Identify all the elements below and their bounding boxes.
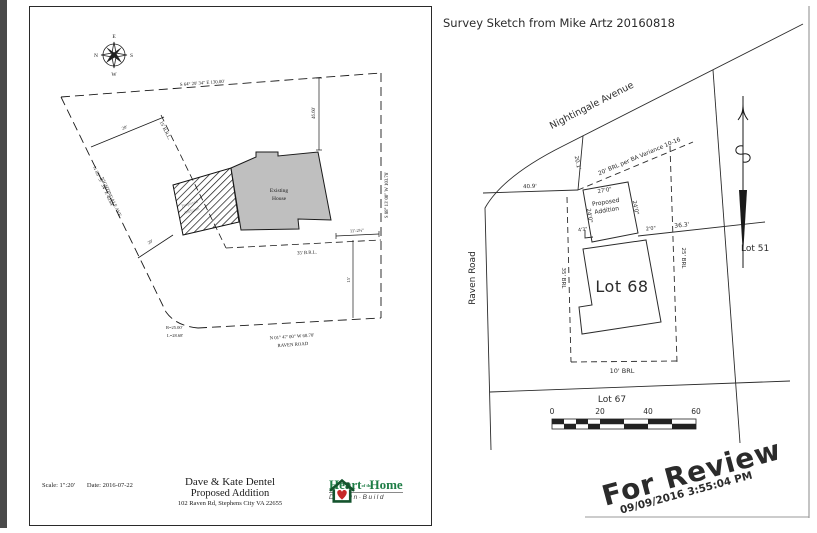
rear-dim-label: 15' (346, 277, 351, 283)
rear-brl-label: 35' B.R.L. (297, 250, 317, 256)
compass-rose-icon (101, 42, 127, 68)
title-block-center: Dave & Kate Dentel Proposed Addition 102… (130, 476, 330, 508)
side-offset-line (138, 235, 173, 258)
curve-length-label: L=28.68' (167, 333, 183, 338)
sketch-title: Survey Sketch from Mike Artz 20160818 (443, 16, 675, 30)
company-logo: Heartof theHome Design·Build (329, 478, 403, 501)
scale-label: Scale: 1":20' (42, 482, 75, 489)
scale-bar: 0 20 40 60 (550, 407, 701, 429)
curve-radius-label: R=25.00' (166, 325, 183, 330)
lot68-label: Lot 68 (595, 277, 648, 296)
brl-10-label: 10' BRL (610, 367, 635, 375)
scale-tick-0: 0 (550, 407, 555, 416)
logo-word-home: Home (369, 477, 402, 492)
dim-20-label: 2'0" (646, 225, 657, 232)
dim-201-label: 20.1' (573, 155, 582, 170)
west-street-label: NIGHTINGALE AVE. (99, 177, 122, 219)
scale-tick-20: 20 (595, 407, 605, 416)
south-street-label: RAVEN ROAD (277, 342, 309, 349)
survey-sketch-drawing: Survey Sketch from Mike Artz 20160818 Pr… (435, 0, 817, 528)
road-and-lot-lines (483, 24, 803, 450)
brl-variance-label: 20' BRL per BA Variance 10-16 (598, 137, 682, 177)
east-bearing-label: S 88° 13' 00" W 103.78' (385, 172, 390, 218)
north-arrow-icon (736, 96, 750, 268)
client-name: Dave & Kate Dentel (130, 476, 330, 488)
existing-house-label-line2: House (272, 196, 287, 202)
project-name: Proposed Addition (130, 488, 330, 500)
house-dim-label: 46.60' (312, 107, 317, 119)
project-address: 102 Raven Rd, Stephens City VA 22655 (130, 500, 330, 508)
south-bearing-label: N 01° 47' 00" W 68.70' (270, 333, 315, 341)
scale-tick-40: 40 (643, 407, 653, 416)
logo-house-heart-icon (329, 478, 355, 504)
plot-plan-page: E N S W Proposed Addition Existing House (29, 6, 432, 526)
dim-409-label: 40.9' (523, 184, 537, 190)
lot51-label: Lot 51 (741, 244, 769, 254)
existing-house-label-line1: Existing (270, 188, 289, 194)
for-review-watermark: For Review (598, 433, 784, 513)
dim-363-label: 36.3' (674, 221, 690, 230)
plot-plan-drawing: E N S W Proposed Addition Existing House (30, 7, 431, 525)
compass-s-label: S (130, 53, 133, 59)
scale-tick-60: 60 (691, 407, 701, 416)
offset-b-label: 20' (147, 238, 154, 245)
offset-a-label: 20' (121, 124, 128, 131)
brl-35-label: 35' BRL (560, 268, 566, 290)
side-dim-label: 11'-2½" (350, 228, 365, 234)
rear-brl-line (226, 240, 381, 248)
date-label: Date: 2016-07-22 (87, 482, 133, 489)
raven-road-label: Raven Road (468, 251, 478, 305)
page-edge-strip (0, 0, 7, 528)
survey-sketch-page: Survey Sketch from Mike Artz 20160818 Pr… (435, 0, 817, 528)
dim-240-left-label: 24'0" (585, 208, 593, 223)
compass-n-label: N (94, 53, 98, 59)
brl-25-label: 25' BRL (680, 248, 686, 270)
proposed-addition-shape (173, 168, 239, 235)
compass-w-label: W (111, 72, 117, 78)
front-offset-line (91, 117, 164, 147)
compass-e-label: E (112, 34, 116, 40)
nightingale-avenue-label: Nightingale Avenue (548, 80, 636, 132)
lot67-label: Lot 67 (598, 395, 626, 405)
dim-43-label: 4'3" (578, 226, 588, 233)
